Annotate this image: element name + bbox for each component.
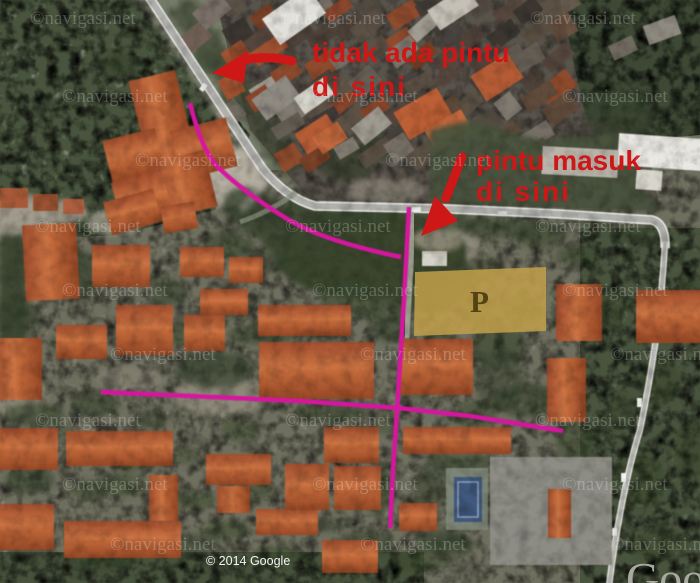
svg-text:©navigasi.net: ©navigasi.net [530, 8, 636, 29]
svg-text:©navigasi.net: ©navigasi.net [562, 474, 668, 495]
svg-text:©navigasi.net: ©navigasi.net [35, 410, 141, 431]
svg-text:©navigasi.net: ©navigasi.net [360, 534, 466, 555]
svg-text:©navigasi.net: ©navigasi.net [562, 86, 668, 107]
svg-text:pintu masuk: pintu masuk [476, 145, 641, 176]
svg-text:©navigasi.net: ©navigasi.net [312, 474, 418, 495]
svg-text:©navigasi.net: ©navigasi.net [30, 8, 136, 29]
svg-text:©navigasi.net: ©navigasi.net [610, 534, 700, 555]
svg-text:©navigasi.net: ©navigasi.net [385, 150, 491, 171]
svg-text:©navigasi.net: ©navigasi.net [110, 534, 216, 555]
svg-text:di sini: di sini [476, 176, 571, 207]
svg-text:©navigasi.net: ©navigasi.net [35, 216, 141, 237]
svg-text:©navigasi.net: ©navigasi.net [285, 410, 391, 431]
svg-text:©navigasi.net: ©navigasi.net [312, 86, 418, 107]
svg-text:©navigasi.net: ©navigasi.net [312, 280, 418, 301]
svg-text:©navigasi.net: ©navigasi.net [360, 344, 466, 365]
svg-text:©navigasi.net: ©navigasi.net [62, 474, 168, 495]
svg-text:©navigasi.net: ©navigasi.net [535, 410, 641, 431]
svg-text:©navigasi.net: ©navigasi.net [280, 8, 386, 29]
svg-text:©navigasi.net: ©navigasi.net [110, 344, 216, 365]
svg-text:©navigasi.net: ©navigasi.net [562, 280, 668, 301]
svg-text:©navigasi.net: ©navigasi.net [135, 150, 241, 171]
svg-text:P: P [470, 284, 489, 319]
svg-text:© 2014 Google: © 2014 Google [206, 554, 290, 568]
svg-text:©navigasi.net: ©navigasi.net [62, 86, 168, 107]
svg-text:©navigasi.net: ©navigasi.net [610, 344, 700, 365]
svg-text:©navigasi.net: ©navigasi.net [535, 216, 641, 237]
svg-text:©navigasi.net: ©navigasi.net [285, 216, 391, 237]
svg-text:©navigasi.net: ©navigasi.net [635, 150, 700, 171]
svg-text:tidak ada pintu: tidak ada pintu [312, 37, 510, 68]
svg-text:Goog: Goog [626, 553, 700, 583]
svg-text:©navigasi.net: ©navigasi.net [62, 280, 168, 301]
